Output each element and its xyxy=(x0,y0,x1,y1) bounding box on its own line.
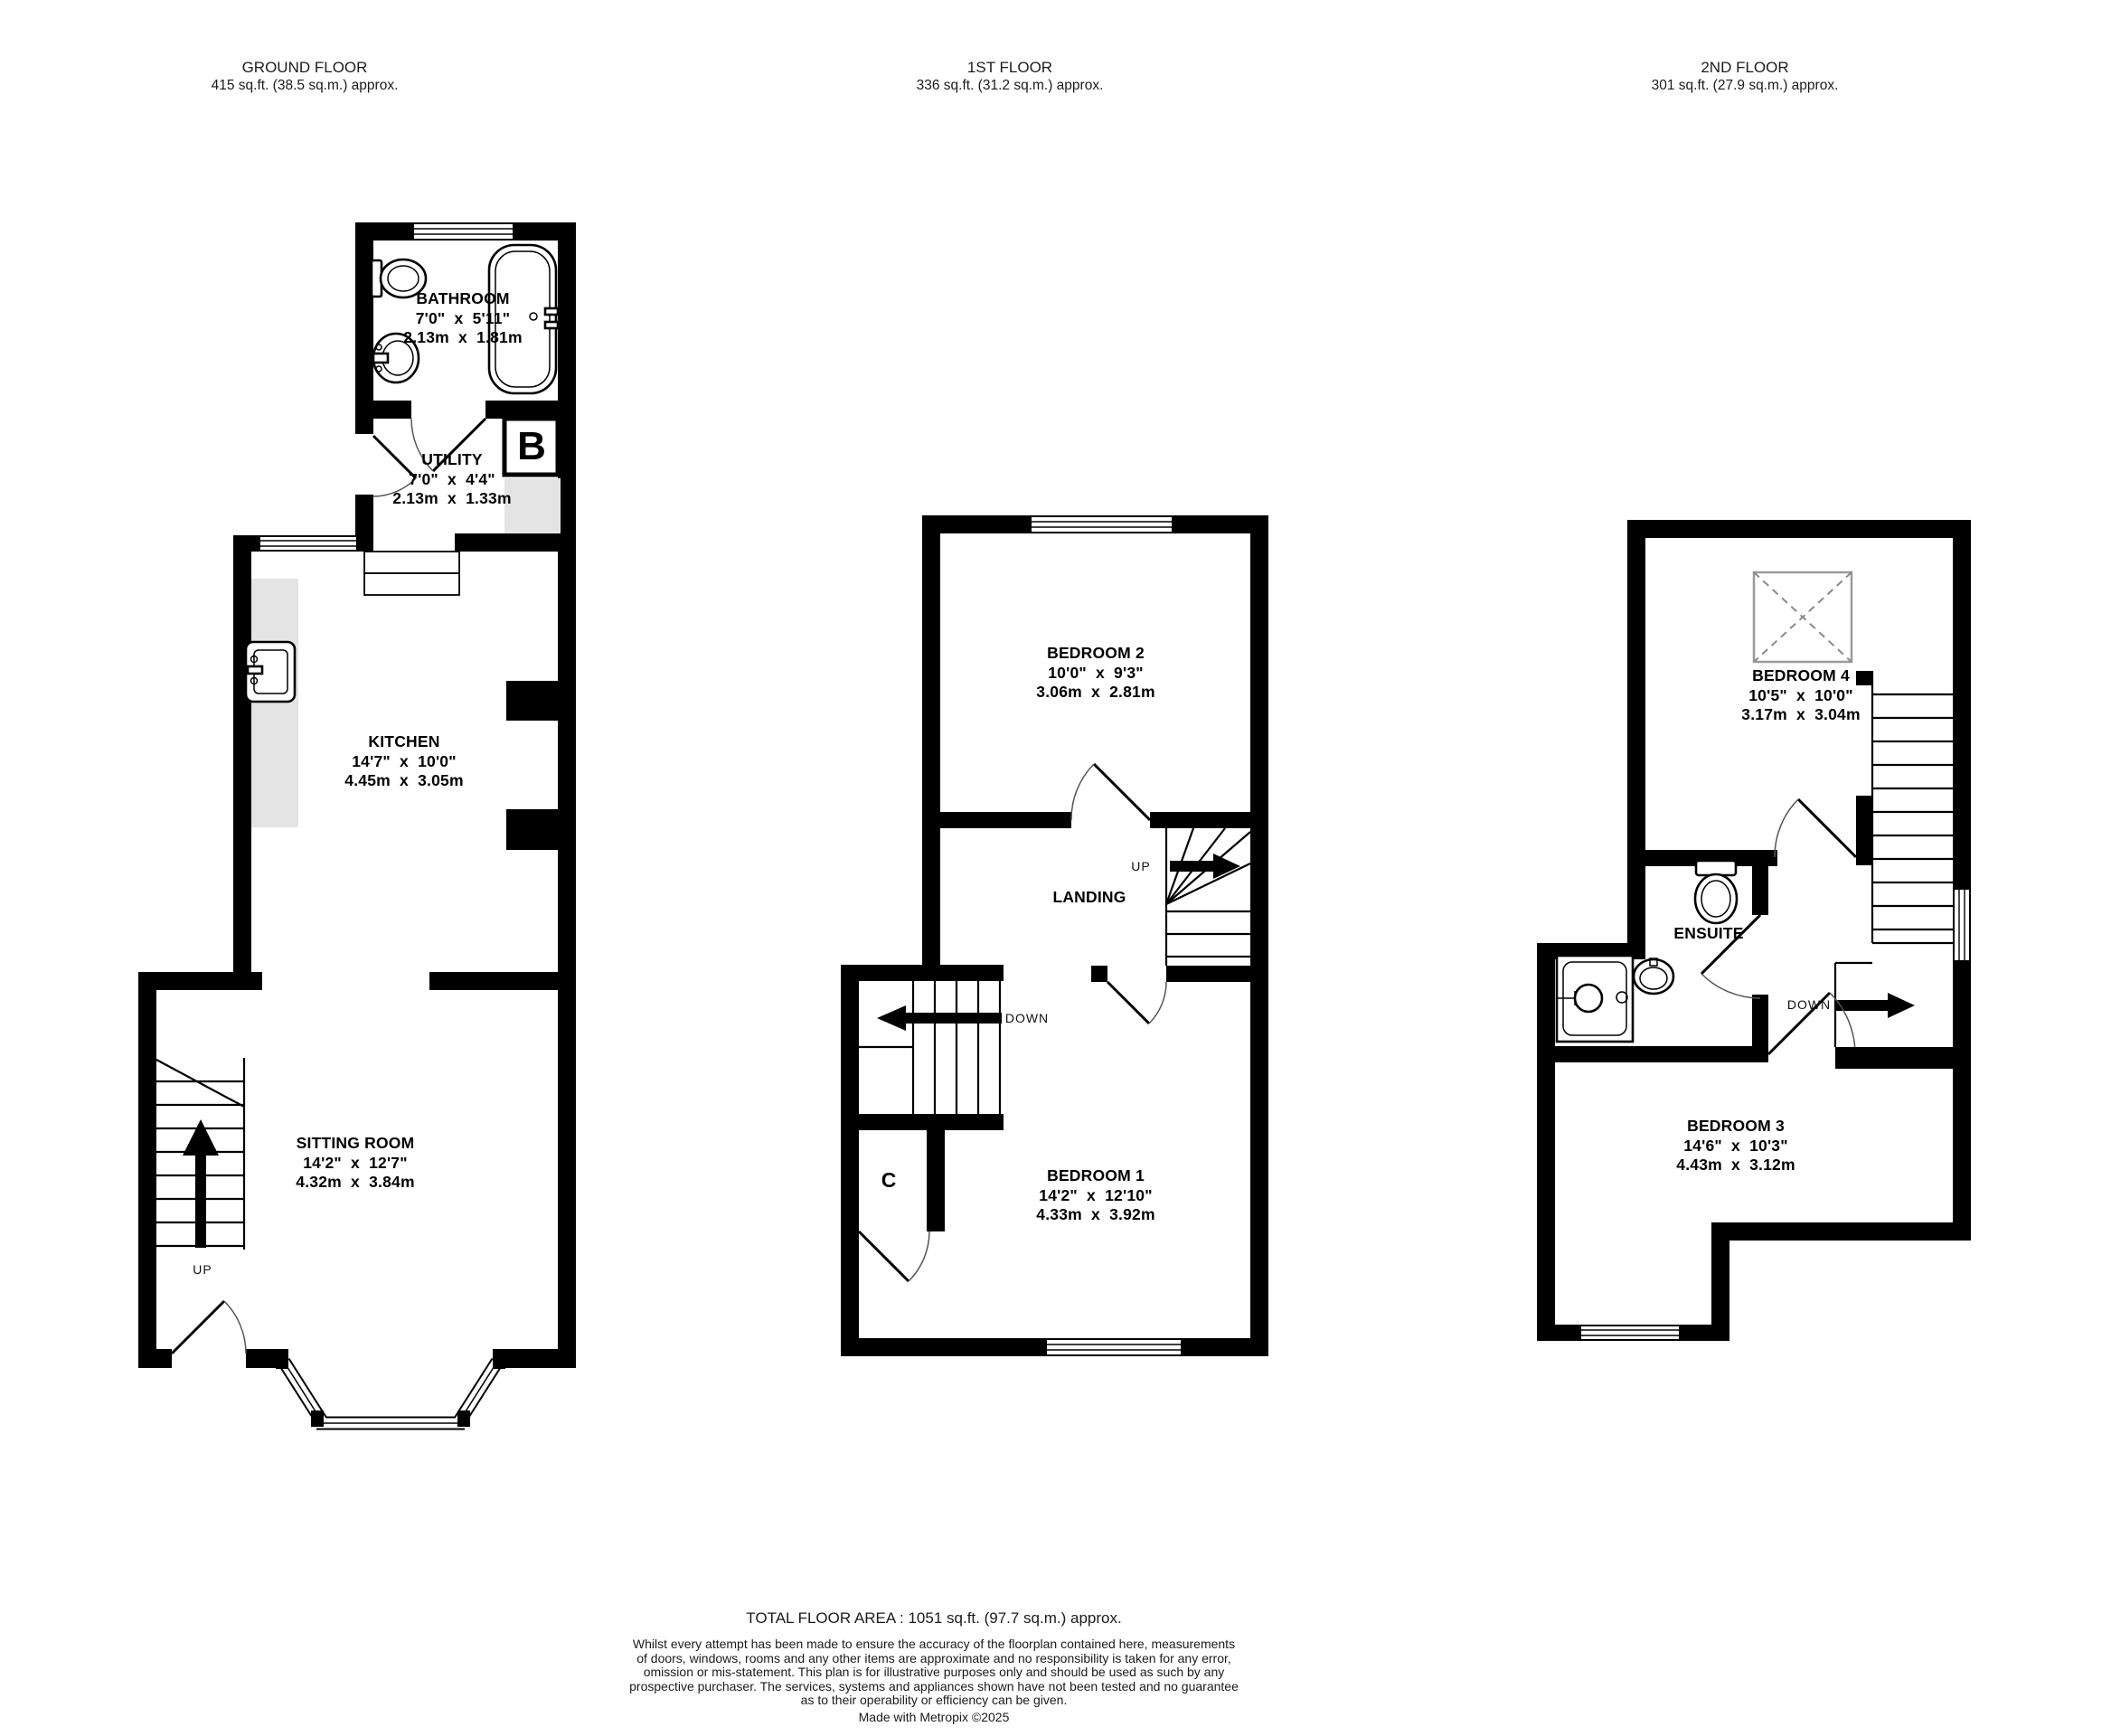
room-name: UTILITY xyxy=(392,450,511,470)
first-floor-plan xyxy=(841,515,1268,1356)
disclaimer-line: prospective purchaser. The services, sys… xyxy=(629,1680,1239,1694)
room-dims-metric: 4.33m x 3.92m xyxy=(1036,1205,1154,1225)
bedroom1-door xyxy=(1107,982,1166,1024)
floor-area: 415 sq.ft. (38.5 sq.m.) approx. xyxy=(212,77,399,94)
bathroom-window xyxy=(413,223,514,240)
stairs-down-label-second: DOWN xyxy=(1787,997,1831,1012)
floor-title: 2ND FLOOR xyxy=(1652,58,1839,77)
room-label-bedroom4: BEDROOM 4 10'5" x 10'0" 3.17m x 3.04m xyxy=(1741,666,1860,725)
bedroom2-door xyxy=(1071,764,1150,820)
room-label-kitchen: KITCHEN 14'7" x 10'0" 4.45m x 3.05m xyxy=(344,732,463,791)
room-dims-imperial: 7'0" x 4'4" xyxy=(392,470,511,490)
stairs-down-label-first: DOWN xyxy=(1005,1011,1049,1025)
room-dims-metric: 4.43m x 3.12m xyxy=(1676,1156,1795,1175)
cupboard-label: C xyxy=(881,1168,897,1193)
floor-title: 1ST FLOOR xyxy=(917,58,1104,77)
room-name: BATHROOM xyxy=(403,289,522,309)
stairs-down-second xyxy=(1835,671,1953,1047)
room-dims-metric: 2.13m x 1.33m xyxy=(392,489,511,509)
appliance xyxy=(504,478,561,534)
bedroom2-window xyxy=(1031,516,1173,533)
bay-window xyxy=(276,1349,505,1427)
disclaimer: Whilst every attempt has been made to en… xyxy=(629,1637,1239,1708)
bedroom1-window xyxy=(1046,1339,1182,1355)
floor-area: 336 sq.ft. (31.2 sq.m.) approx. xyxy=(917,77,1104,94)
room-label-utility: UTILITY 7'0" x 4'4" 2.13m x 1.33m xyxy=(392,450,511,509)
stairwell-window xyxy=(1954,889,1970,961)
worktop xyxy=(364,552,459,595)
first-floor-header: 1ST FLOOR 336 sq.ft. (31.2 sq.m.) approx… xyxy=(917,58,1104,94)
kitchen-sink-icon xyxy=(246,642,295,702)
kitchen-window xyxy=(259,536,357,551)
room-label-bedroom3: BEDROOM 3 14'6" x 10'3" 4.43m x 3.12m xyxy=(1676,1117,1795,1175)
floorplan-page: GROUND FLOOR 415 sq.ft. (38.5 sq.m.) app… xyxy=(0,0,2111,1736)
room-dims-metric: 3.17m x 3.04m xyxy=(1741,705,1860,725)
room-dims-metric: 3.06m x 2.81m xyxy=(1036,683,1154,703)
cupboard xyxy=(859,1130,945,1281)
room-dims-imperial: 14'2" x 12'10" xyxy=(1036,1186,1154,1206)
shower-icon xyxy=(1557,956,1633,1042)
boiler-label: B xyxy=(517,427,546,467)
room-label-ensuite: ENSUITE xyxy=(1673,924,1743,944)
room-label-landing: LANDING xyxy=(1052,888,1126,908)
room-name: ENSUITE xyxy=(1673,924,1743,944)
room-name: BEDROOM 3 xyxy=(1676,1117,1795,1137)
ensuite-basin-icon xyxy=(1634,958,1673,994)
room-name: SITTING ROOM xyxy=(296,1134,414,1154)
room-dims-imperial: 10'0" x 9'3" xyxy=(1036,664,1154,684)
disclaimer-line: of doors, windows, rooms and any other i… xyxy=(629,1652,1239,1666)
room-name: BEDROOM 2 xyxy=(1036,644,1154,664)
room-name: LANDING xyxy=(1052,888,1126,908)
ground-floor-header: GROUND FLOOR 415 sq.ft. (38.5 sq.m.) app… xyxy=(212,58,399,94)
front-door xyxy=(172,1301,246,1354)
bedroom4-door xyxy=(1775,799,1856,857)
kitchen-counter xyxy=(251,579,298,827)
stairs-up-winder xyxy=(1166,828,1250,966)
total-floor-area: TOTAL FLOOR AREA : 1051 sq.ft. (97.7 sq.… xyxy=(746,1609,1121,1627)
floor-title: GROUND FLOOR xyxy=(212,58,399,77)
room-label-bedroom1: BEDROOM 1 14'2" x 12'10" 4.33m x 3.92m xyxy=(1036,1166,1154,1225)
disclaimer-line: omission or mis-statement. This plan is … xyxy=(629,1665,1239,1680)
room-dims-imperial: 10'5" x 10'0" xyxy=(1741,686,1860,706)
room-dims-metric: 4.32m x 3.84m xyxy=(296,1173,414,1193)
ensuite-toilet-icon xyxy=(1695,861,1737,923)
stairs-down xyxy=(859,981,1002,1114)
room-label-bedroom2: BEDROOM 2 10'0" x 9'3" 3.06m x 2.81m xyxy=(1036,644,1154,703)
room-label-bathroom: BATHROOM 7'0" x 5'11" 2.13m x 1.81m xyxy=(403,289,522,348)
disclaimer-line: Whilst every attempt has been made to en… xyxy=(629,1637,1239,1652)
second-floor-plan xyxy=(1537,520,1971,1341)
floor-area: 301 sq.ft. (27.9 sq.m.) approx. xyxy=(1652,77,1839,94)
room-label-sitting-room: SITTING ROOM 14'2" x 12'7" 4.32m x 3.84m xyxy=(296,1134,414,1193)
room-dims-imperial: 14'7" x 10'0" xyxy=(344,752,463,772)
skylight-icon xyxy=(1754,572,1852,662)
room-name: BEDROOM 1 xyxy=(1036,1166,1154,1186)
ground-floor-plan xyxy=(138,222,576,1427)
room-name: KITCHEN xyxy=(344,732,463,752)
stairs-up-label-ground: UP xyxy=(193,1262,212,1277)
floorplan-drawing xyxy=(0,0,2111,1736)
credit-line: Made with Metropix ©2025 xyxy=(859,1710,1010,1724)
disclaimer-line: as to their operability or efficiency ca… xyxy=(629,1694,1239,1708)
stairs-up-label-first: UP xyxy=(1131,859,1150,873)
room-name: BEDROOM 4 xyxy=(1741,666,1860,686)
room-dims-imperial: 14'2" x 12'7" xyxy=(296,1154,414,1174)
room-dims-imperial: 14'6" x 10'3" xyxy=(1676,1137,1795,1156)
room-dims-imperial: 7'0" x 5'11" xyxy=(403,309,522,329)
second-floor-header: 2ND FLOOR 301 sq.ft. (27.9 sq.m.) approx… xyxy=(1652,58,1839,94)
stairs-up xyxy=(156,1058,244,1250)
bedroom3-window xyxy=(1580,1326,1680,1340)
room-dims-metric: 2.13m x 1.81m xyxy=(403,328,522,348)
room-dims-metric: 4.45m x 3.05m xyxy=(344,771,463,791)
